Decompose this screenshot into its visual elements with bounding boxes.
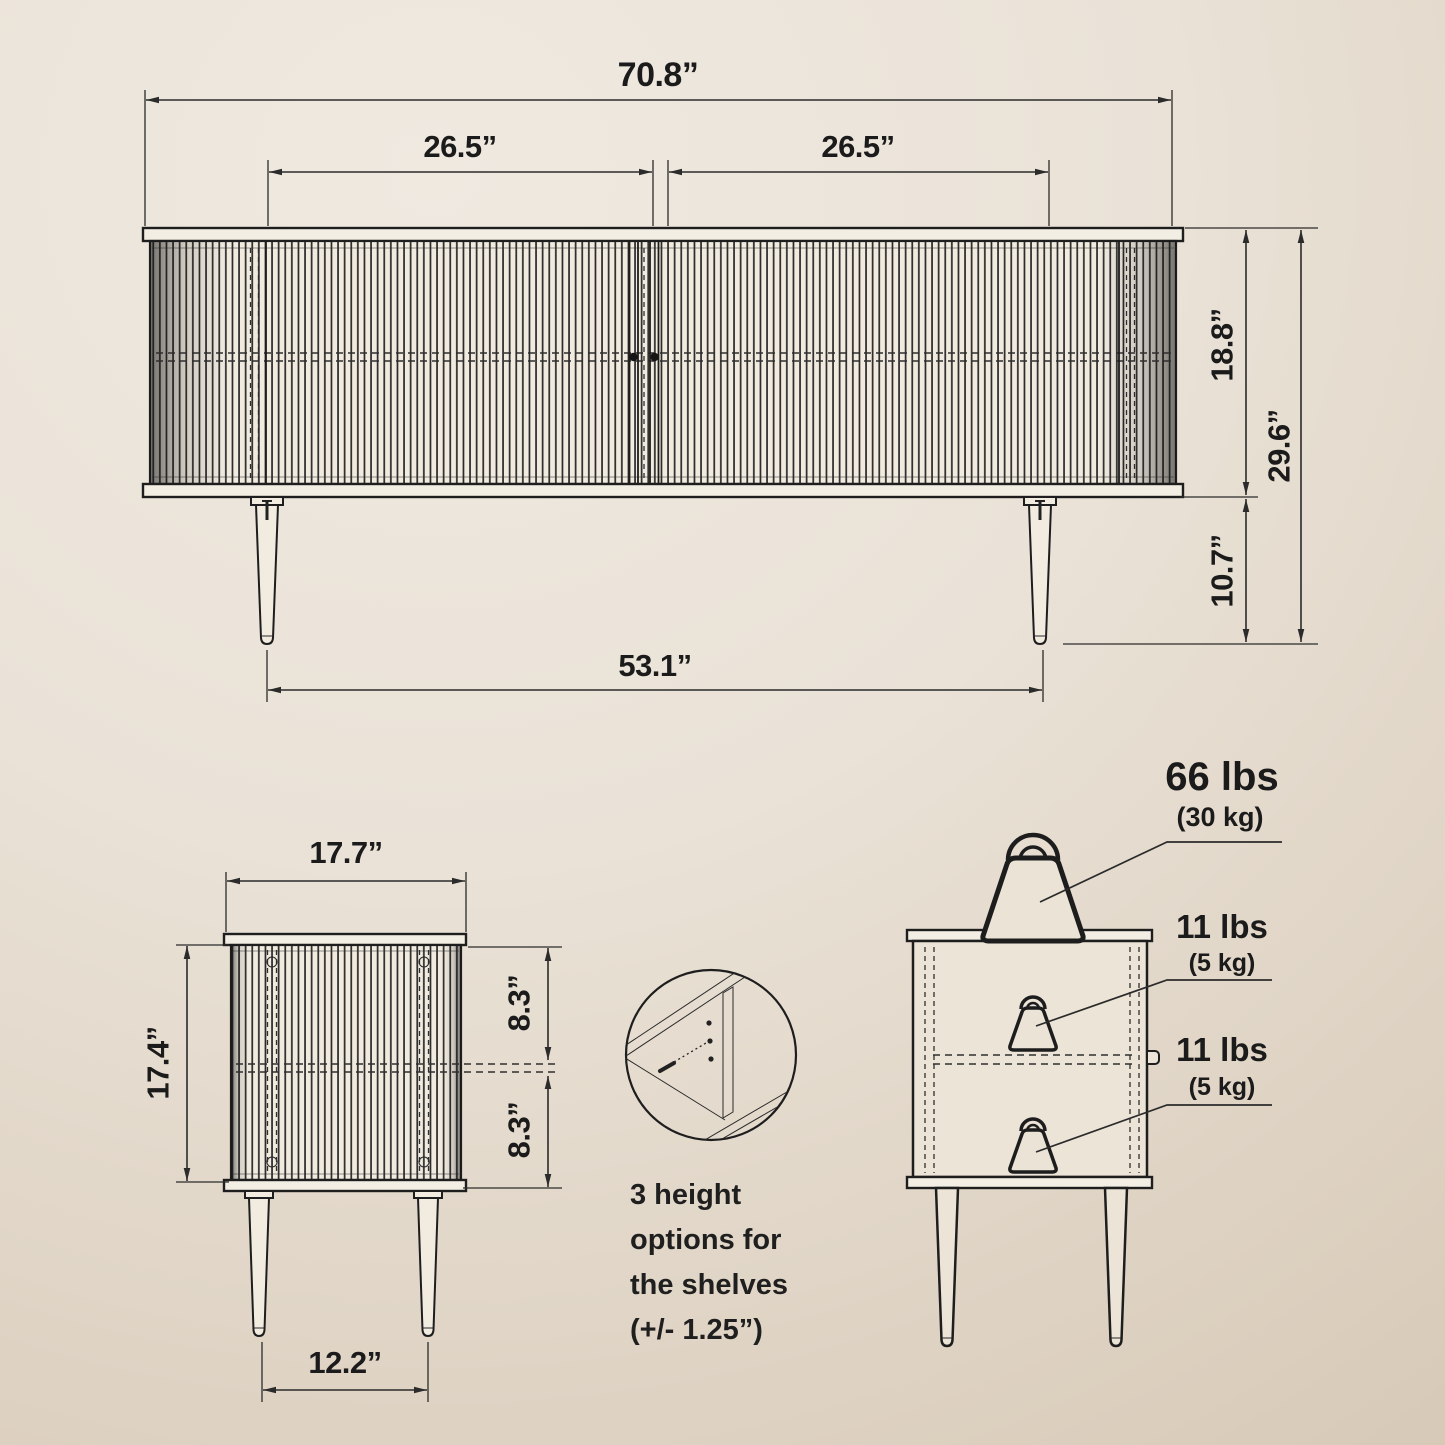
- diagram-svg: 70.8” 26.5” 26.5” 18.8” 10.7” 29.6”: [0, 0, 1445, 1445]
- front-top-board: [143, 228, 1183, 241]
- dimension-leg-span-front: 53.1”: [267, 648, 1043, 702]
- dimension-leg-span-side: 12.2”: [262, 1342, 428, 1402]
- shelf-detail: 3 height options for the shelves (+/- 1.…: [620, 964, 798, 1346]
- front-edge-shading: [150, 241, 1176, 484]
- detail-circle-content: [620, 964, 798, 1150]
- left-door-width-label: 26.5”: [423, 129, 496, 164]
- front-left-leg: [251, 497, 283, 644]
- right-door-knob-icon: [650, 353, 658, 361]
- side-body-height-label: 17.4”: [141, 1026, 176, 1099]
- furniture-dimension-diagram: 70.8” 26.5” 26.5” 18.8” 10.7” 29.6”: [0, 0, 1445, 1445]
- side-knob-icon: [1147, 1051, 1159, 1064]
- dimension-overall-width: 70.8”: [145, 56, 1172, 226]
- dimension-side-body-height: 17.4”: [141, 945, 230, 1182]
- capacity-bottom-board: [907, 1177, 1152, 1188]
- shelf-note-line4: (+/- 1.25”): [630, 1314, 763, 1346]
- right-door-width-label: 26.5”: [821, 129, 894, 164]
- shelf-note-line3: the shelves: [630, 1269, 788, 1301]
- upper-compartment-label: 8.3”: [502, 975, 537, 1032]
- shelf-note: 3 height options for the shelves (+/- 1.…: [630, 1179, 788, 1346]
- dimension-body-height: 18.8”: [1205, 230, 1247, 495]
- dimension-depth: 17.7”: [226, 835, 466, 932]
- capacity-left-leg: [936, 1188, 958, 1346]
- lower-shelf-capacity-lbs: 11 lbs: [1176, 1031, 1268, 1068]
- side-leg-span-label: 12.2”: [308, 1345, 381, 1380]
- shelf-note-line1: 3 height: [630, 1179, 742, 1211]
- dimension-leg-height: 10.7”: [1205, 499, 1247, 642]
- capacity-view: 66 lbs (30 kg) 11 lbs (5 kg) 11 lbs (5 k…: [907, 755, 1282, 1346]
- front-bottom-board: [143, 484, 1183, 497]
- capacity-right-leg: [1105, 1188, 1127, 1346]
- overall-width-label: 70.8”: [618, 56, 699, 94]
- tabletop-capacity-kg: (30 kg): [1176, 802, 1263, 832]
- leg-height-label: 10.7”: [1205, 534, 1240, 607]
- front-right-leg: [1024, 497, 1056, 644]
- upper-shelf-capacity-lbs: 11 lbs: [1176, 908, 1268, 945]
- dimension-right-door: 26.5”: [668, 129, 1049, 226]
- lower-shelf-capacity-kg: (5 kg): [1189, 1073, 1256, 1101]
- lower-compartment-label: 8.3”: [502, 1102, 537, 1159]
- dimension-overall-height: 29.6”: [1262, 230, 1302, 642]
- side-right-leg: [414, 1191, 442, 1336]
- detail-circle: [626, 970, 796, 1140]
- left-door-knob-icon: [629, 353, 637, 361]
- overall-height-label: 29.6”: [1262, 409, 1297, 482]
- upper-shelf-capacity-kg: (5 kg): [1189, 949, 1256, 977]
- depth-label: 17.7”: [309, 835, 382, 870]
- side-edge-shading: [231, 945, 461, 1180]
- front-view: [143, 228, 1183, 644]
- front-leg-span-label: 53.1”: [618, 648, 691, 683]
- body-height-label: 18.8”: [1205, 308, 1240, 381]
- side-left-leg: [245, 1191, 273, 1336]
- dimension-left-door: 26.5”: [268, 129, 653, 226]
- screw-icon: [660, 1063, 674, 1071]
- shelf-note-line2: options for: [630, 1224, 781, 1256]
- side-top-board: [224, 934, 466, 945]
- tabletop-leader-line: [1040, 842, 1282, 902]
- dimension-lower-compartment: 8.3”: [463, 1076, 562, 1188]
- tabletop-capacity-lbs: 66 lbs: [1165, 755, 1278, 799]
- dimension-upper-compartment: 8.3”: [468, 947, 562, 1060]
- side-bottom-board: [224, 1180, 466, 1191]
